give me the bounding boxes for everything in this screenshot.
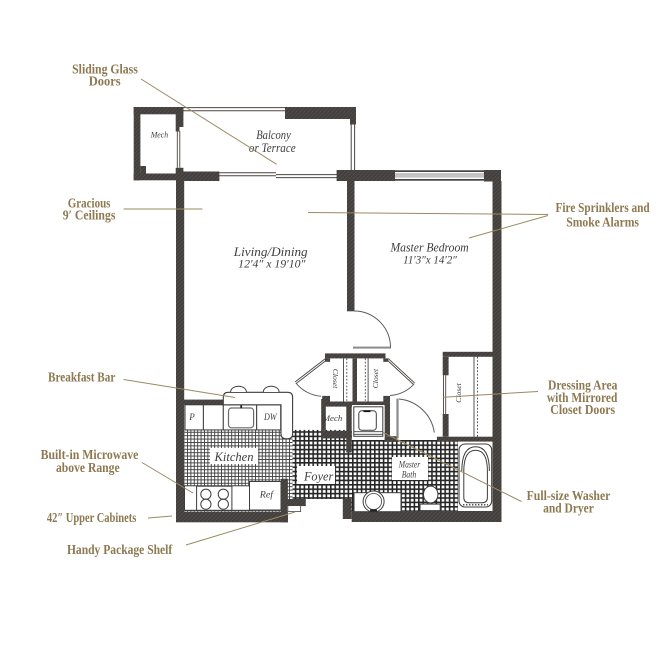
svg-text:Closet Doors: Closet Doors [550,402,615,417]
svg-text:Master: Master [398,461,421,471]
svg-text:11′3″x 14′2″: 11′3″x 14′2″ [403,255,457,267]
svg-text:Foyer: Foyer [303,469,334,484]
svg-text:Closet: Closet [331,369,339,390]
svg-text:Closet: Closet [455,382,463,403]
svg-text:Kitchen: Kitchen [214,449,254,464]
svg-text:Smoke Alarms: Smoke Alarms [566,215,639,230]
svg-text:P: P [188,412,195,422]
svg-text:Master Bedroom: Master Bedroom [390,240,469,255]
svg-text:Living/Dining: Living/Dining [233,244,308,259]
svg-text:or Terrace: or Terrace [249,140,296,155]
svg-text:Mech: Mech [322,413,343,423]
svg-text:Ref: Ref [259,490,275,500]
svg-text:Bath: Bath [402,471,417,481]
svg-text:Closet: Closet [372,368,380,389]
svg-text:DW: DW [263,412,278,422]
svg-text:Fire Sprinklers and: Fire Sprinklers and [556,200,650,215]
svg-text:above Range: above Range [56,460,120,475]
svg-text:and Dryer: and Dryer [543,501,594,516]
svg-text:Mech: Mech [150,130,168,140]
svg-text:9′ Ceilings: 9′ Ceilings [63,208,116,223]
svg-text:42″ Upper Cabinets: 42″ Upper Cabinets [47,510,137,525]
svg-text:Doors: Doors [89,74,121,89]
svg-text:12′4″ x 19′10″: 12′4″ x 19′10″ [238,259,305,271]
svg-text:Handy Package Shelf: Handy Package Shelf [67,542,173,557]
svg-text:Breakfast Bar: Breakfast Bar [48,370,115,385]
